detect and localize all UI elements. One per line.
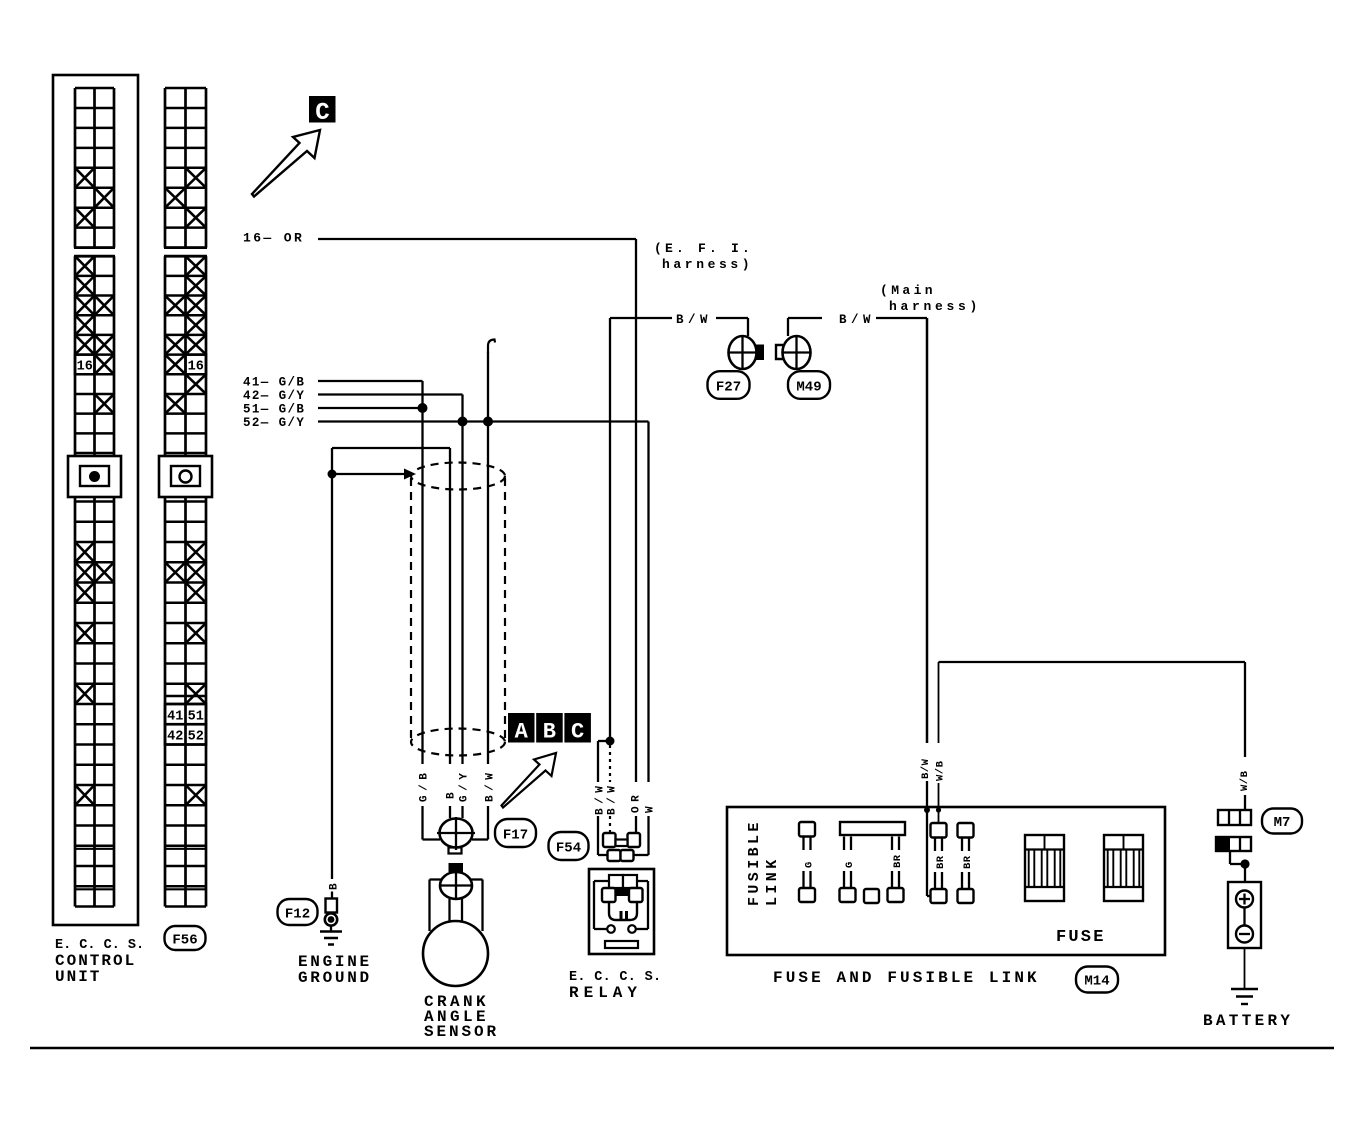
svg-text:M49: M49 — [796, 380, 821, 396]
svg-text:B: B — [446, 792, 458, 799]
svg-text:F54: F54 — [556, 841, 581, 857]
svg-text:51: 51 — [188, 709, 204, 724]
svg-text:M7: M7 — [1274, 815, 1291, 831]
svg-text:W/B: W/B — [1239, 770, 1251, 791]
svg-text:G/Y: G/Y — [459, 769, 471, 802]
svg-text:B: B — [329, 883, 341, 890]
svg-text:B/W: B/W — [920, 758, 932, 779]
svg-text:F12: F12 — [285, 907, 310, 923]
svg-text:W/B: W/B — [935, 760, 947, 781]
svg-text:B/W: B/W — [676, 313, 712, 327]
svg-text:G/B: G/B — [419, 769, 431, 802]
svg-text:W: W — [645, 806, 657, 813]
svg-text:BR: BR — [892, 854, 904, 868]
svg-text:BR: BR — [962, 855, 974, 869]
svg-text:B/W: B/W — [839, 313, 875, 327]
svg-text:E. C. C. S.: E. C. C. S. — [569, 970, 661, 985]
svg-text:16— OR: 16— OR — [243, 231, 304, 246]
svg-text:41: 41 — [167, 709, 183, 724]
svg-text:B/W: B/W — [595, 782, 607, 815]
svg-text:G: G — [804, 861, 816, 868]
svg-text:RELAY: RELAY — [569, 984, 642, 1002]
svg-text:BR: BR — [935, 855, 947, 869]
svg-text:41— G/B: 41— G/B — [243, 376, 305, 390]
svg-text:M14: M14 — [1084, 974, 1109, 990]
svg-text:FUSE: FUSE — [1056, 928, 1106, 947]
svg-text:C: C — [571, 720, 584, 745]
svg-text:(Main: (Main — [880, 283, 936, 298]
svg-text:42: 42 — [167, 730, 183, 745]
svg-text:E. C. C. S.: E. C. C. S. — [55, 938, 144, 953]
svg-text:A: A — [515, 720, 529, 745]
svg-text:B/W: B/W — [607, 782, 619, 815]
svg-text:52: 52 — [188, 730, 204, 745]
svg-text:16: 16 — [77, 359, 93, 374]
svg-text:FUSIBLE: FUSIBLE — [746, 819, 763, 906]
svg-text:B: B — [543, 720, 556, 745]
svg-text:BATTERY: BATTERY — [1203, 1012, 1293, 1030]
svg-text:52— G/Y: 52— G/Y — [243, 416, 305, 430]
svg-text:SENSOR: SENSOR — [424, 1023, 499, 1041]
svg-text:51— G/B: 51— G/B — [243, 403, 305, 417]
svg-text:F27: F27 — [716, 380, 741, 396]
svg-text:OR: OR — [631, 791, 643, 813]
svg-text:B/W: B/W — [485, 769, 497, 802]
svg-text:G: G — [844, 861, 856, 868]
svg-text:C: C — [315, 100, 329, 127]
svg-text:LINK: LINK — [764, 856, 781, 906]
svg-text:GROUND: GROUND — [298, 969, 372, 987]
svg-text:F56: F56 — [172, 933, 197, 949]
svg-text:(E. F. I.: (E. F. I. — [654, 241, 753, 256]
svg-text:harness): harness) — [662, 257, 753, 272]
svg-text:FUSE AND FUSIBLE LINK: FUSE AND FUSIBLE LINK — [773, 969, 1040, 987]
svg-text:42— G/Y: 42— G/Y — [243, 389, 305, 403]
svg-text:harness): harness) — [889, 299, 981, 314]
svg-text:UNIT: UNIT — [55, 968, 101, 986]
svg-text:F17: F17 — [503, 828, 528, 844]
svg-text:16: 16 — [188, 359, 204, 374]
